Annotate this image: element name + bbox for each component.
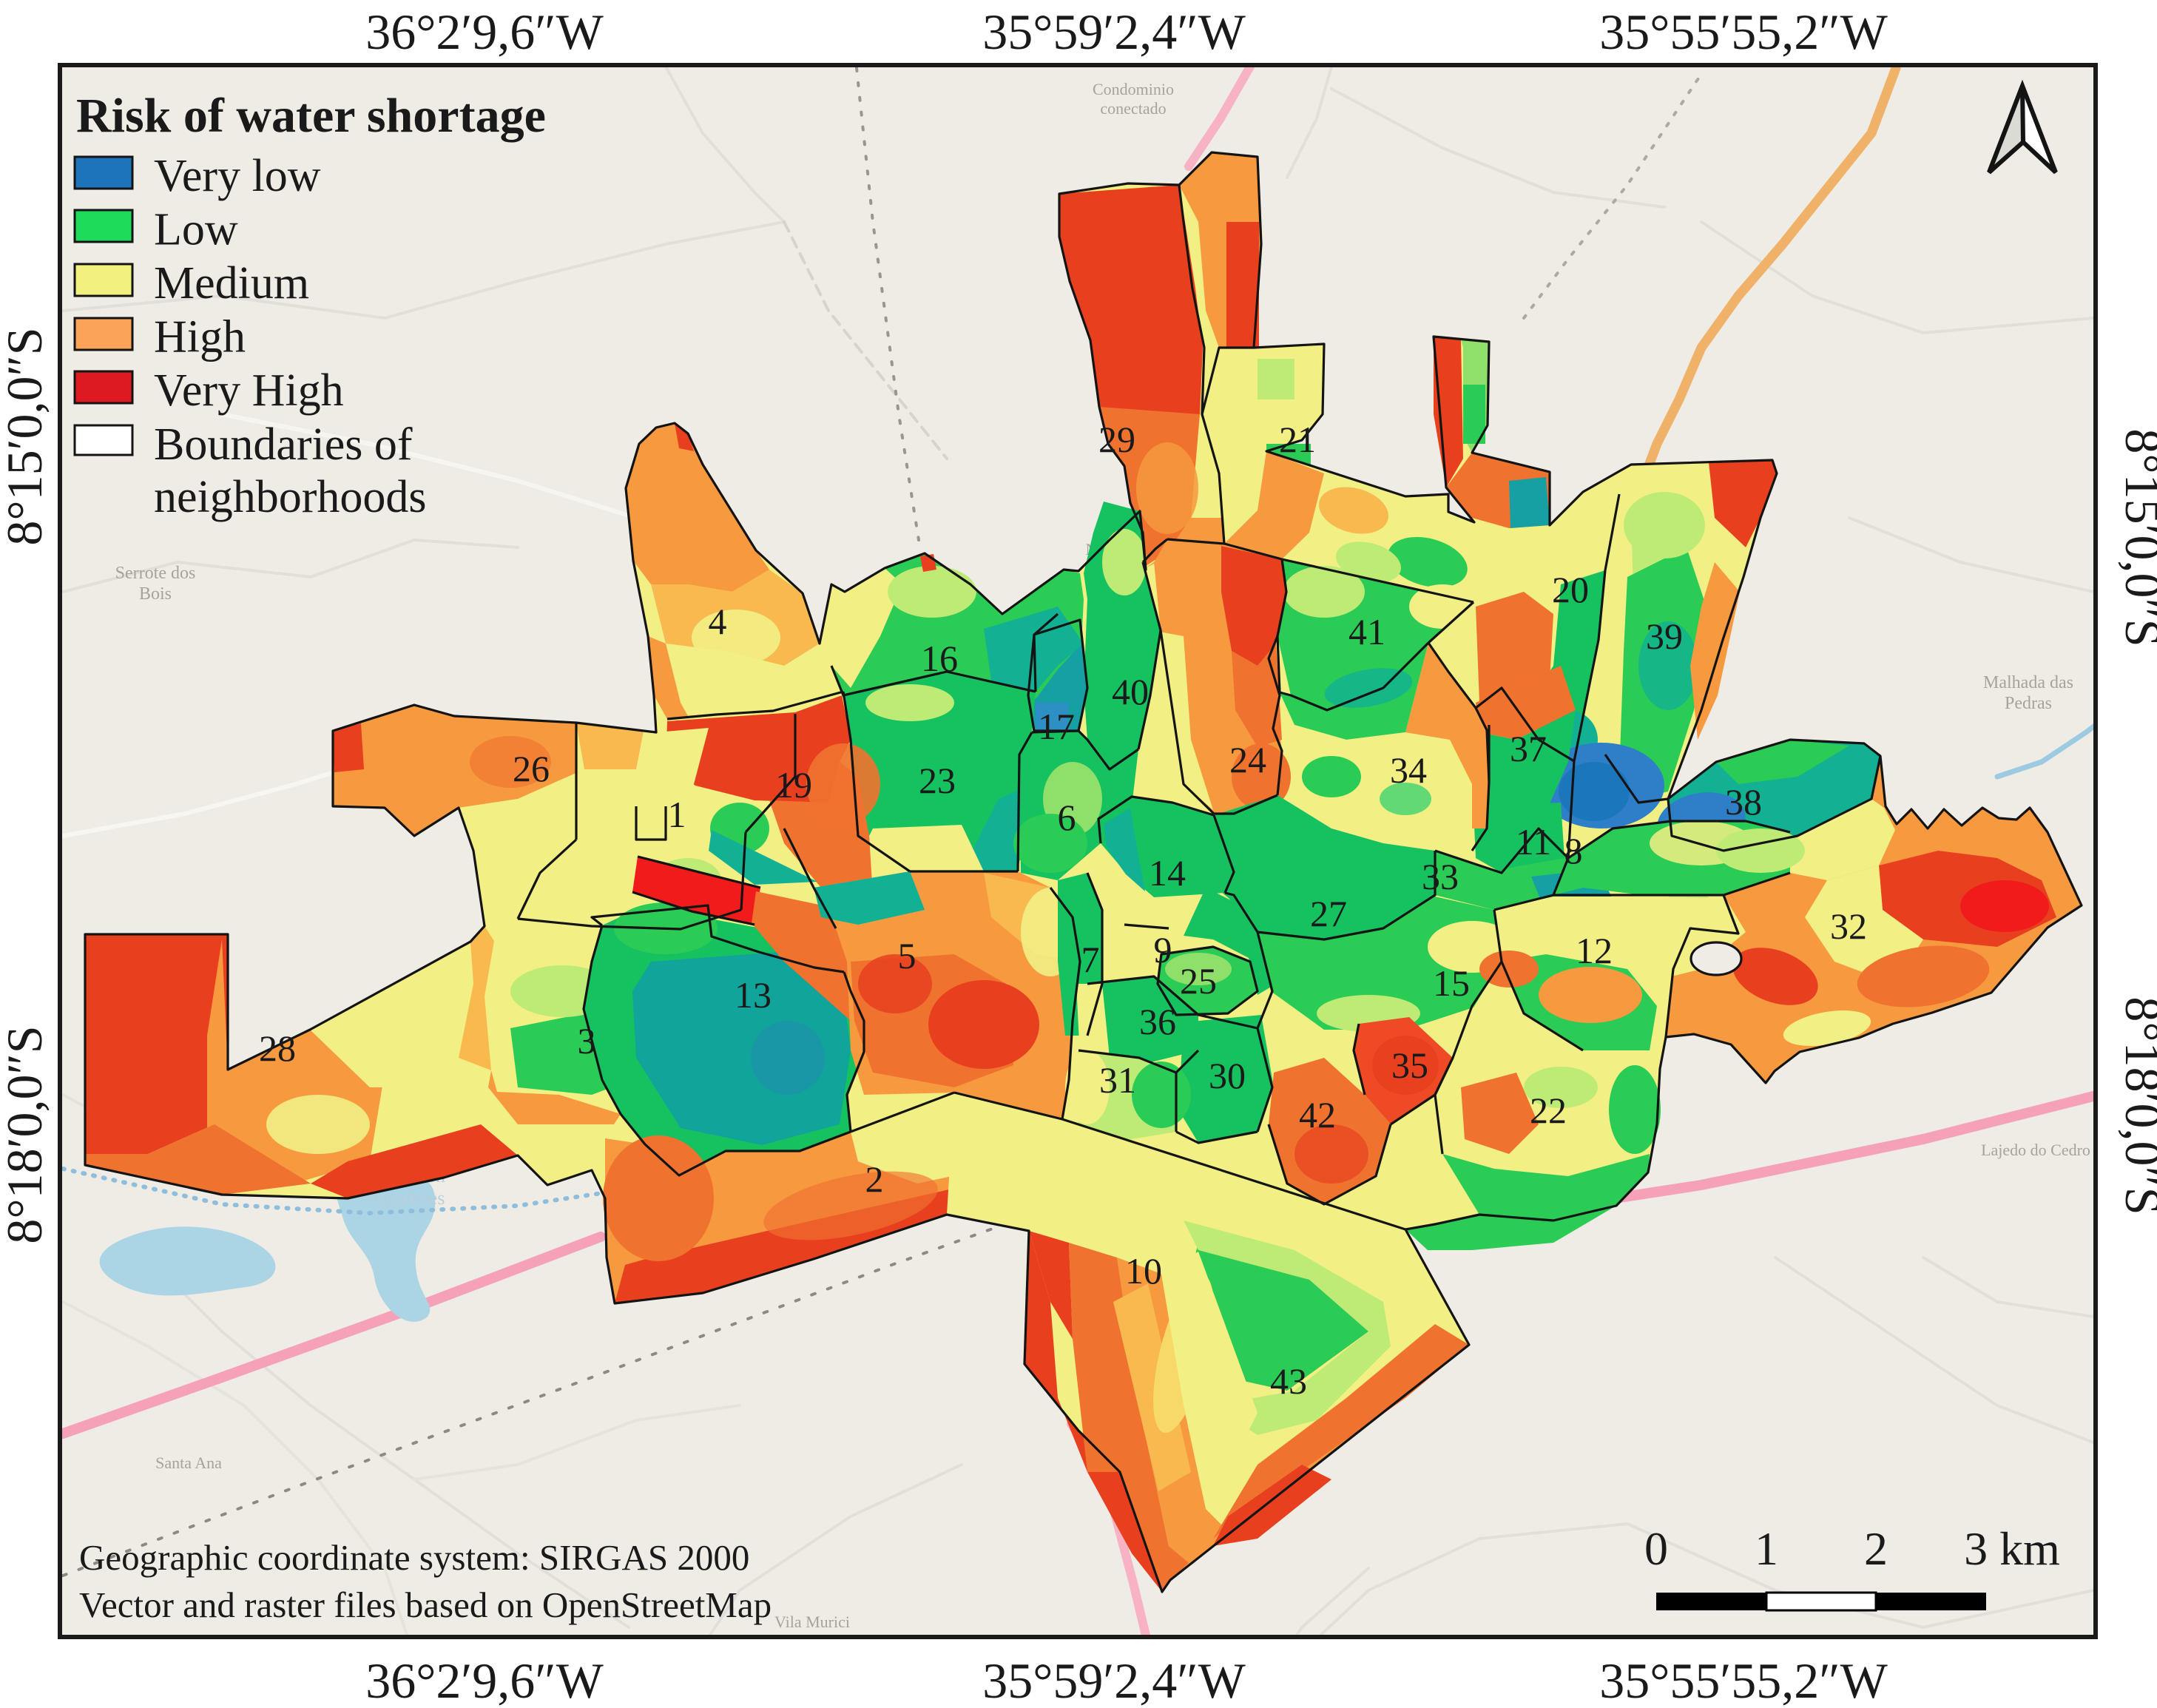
svg-text:40: 40 xyxy=(1112,671,1149,712)
svg-text:19: 19 xyxy=(775,764,812,806)
svg-text:8°18′0,0″S: 8°18′0,0″S xyxy=(0,1025,53,1243)
svg-text:25: 25 xyxy=(1180,960,1217,1002)
svg-text:31: 31 xyxy=(1099,1059,1136,1101)
svg-text:13: 13 xyxy=(735,974,772,1016)
svg-text:39: 39 xyxy=(1646,615,1683,657)
svg-text:Bois: Bois xyxy=(139,584,172,604)
svg-text:10: 10 xyxy=(1125,1250,1162,1292)
svg-text:Geographic coordinate system:: Geographic coordinate system: SIRGAS 200… xyxy=(79,1537,749,1578)
svg-text:16: 16 xyxy=(921,638,958,679)
svg-text:8°15′0,0″S: 8°15′0,0″S xyxy=(2115,428,2157,647)
svg-text:9: 9 xyxy=(1154,929,1172,971)
svg-text:Serrote dos: Serrote dos xyxy=(115,564,196,583)
svg-text:1: 1 xyxy=(668,794,686,835)
svg-text:32: 32 xyxy=(1830,905,1867,947)
svg-text:Low: Low xyxy=(154,205,238,255)
svg-text:28: 28 xyxy=(259,1027,296,1069)
svg-text:35°55′55,2″W: 35°55′55,2″W xyxy=(1599,1653,1888,1708)
svg-text:43: 43 xyxy=(1270,1360,1307,1402)
svg-text:35°55′55,2″W: 35°55′55,2″W xyxy=(1599,4,1888,60)
svg-text:5: 5 xyxy=(898,935,917,976)
svg-text:8°15′0,0″S: 8°15′0,0″S xyxy=(0,327,53,545)
svg-text:3: 3 xyxy=(578,1020,596,1061)
svg-text:High: High xyxy=(154,312,246,362)
svg-text:42: 42 xyxy=(1299,1094,1336,1135)
svg-text:Medium: Medium xyxy=(154,258,309,308)
svg-text:Lajedo do Cedro: Lajedo do Cedro xyxy=(1981,1141,2090,1159)
svg-text:35°59′2,4″W: 35°59′2,4″W xyxy=(982,4,1246,60)
svg-text:8: 8 xyxy=(1564,830,1583,871)
svg-text:Very High: Very High xyxy=(154,365,344,416)
svg-text:33: 33 xyxy=(1422,856,1459,897)
svg-text:36°2′9,6″W: 36°2′9,6″W xyxy=(365,1653,604,1708)
svg-text:Condominio: Condominio xyxy=(1093,80,1174,98)
svg-text:conectado: conectado xyxy=(1100,99,1166,118)
svg-text:7: 7 xyxy=(1081,939,1100,980)
svg-text:27: 27 xyxy=(1310,893,1347,934)
svg-text:Risk of water shortage: Risk of water shortage xyxy=(76,89,546,143)
svg-text:Boundaries of: Boundaries of xyxy=(154,419,413,470)
svg-text:Vila Murici: Vila Murici xyxy=(774,1613,850,1631)
svg-text:36: 36 xyxy=(1139,1001,1176,1042)
svg-text:Vector and raster files based: Vector and raster files based on OpenStr… xyxy=(79,1584,772,1625)
svg-text:23: 23 xyxy=(919,760,956,801)
svg-text:29: 29 xyxy=(1098,419,1135,460)
svg-text:Santa Ana: Santa Ana xyxy=(155,1454,222,1472)
svg-text:26: 26 xyxy=(513,748,550,789)
svg-text:6: 6 xyxy=(1058,797,1076,838)
svg-text:1: 1 xyxy=(1755,1522,1778,1575)
svg-text:35: 35 xyxy=(1391,1044,1428,1086)
svg-text:35°59′2,4″W: 35°59′2,4″W xyxy=(982,1653,1246,1708)
svg-text:Very low: Very low xyxy=(154,151,321,201)
svg-text:2: 2 xyxy=(1864,1522,1888,1575)
svg-text:4: 4 xyxy=(709,601,727,642)
svg-text:8°18′0,0″S: 8°18′0,0″S xyxy=(2115,996,2157,1215)
svg-text:17: 17 xyxy=(1038,706,1075,747)
svg-text:Malhada das: Malhada das xyxy=(1983,673,2073,692)
svg-text:36°2′9,6″W: 36°2′9,6″W xyxy=(365,4,604,60)
svg-text:3 km: 3 km xyxy=(1964,1522,2060,1575)
svg-text:41: 41 xyxy=(1348,611,1385,652)
svg-text:Pedras: Pedras xyxy=(2005,694,2052,713)
svg-text:15: 15 xyxy=(1433,962,1470,1004)
svg-text:30: 30 xyxy=(1209,1055,1246,1096)
svg-text:0: 0 xyxy=(1644,1522,1668,1575)
svg-text:37: 37 xyxy=(1510,728,1547,769)
svg-text:24: 24 xyxy=(1229,739,1266,780)
svg-text:34: 34 xyxy=(1390,749,1427,791)
svg-text:2: 2 xyxy=(865,1158,884,1200)
svg-text:neighborhoods: neighborhoods xyxy=(154,472,427,522)
svg-text:14: 14 xyxy=(1149,852,1186,894)
svg-text:12: 12 xyxy=(1576,930,1613,971)
svg-text:20: 20 xyxy=(1552,569,1589,610)
svg-text:21: 21 xyxy=(1279,419,1316,460)
svg-text:38: 38 xyxy=(1725,781,1762,823)
svg-text:11: 11 xyxy=(1516,821,1551,863)
svg-text:22: 22 xyxy=(1530,1090,1567,1131)
